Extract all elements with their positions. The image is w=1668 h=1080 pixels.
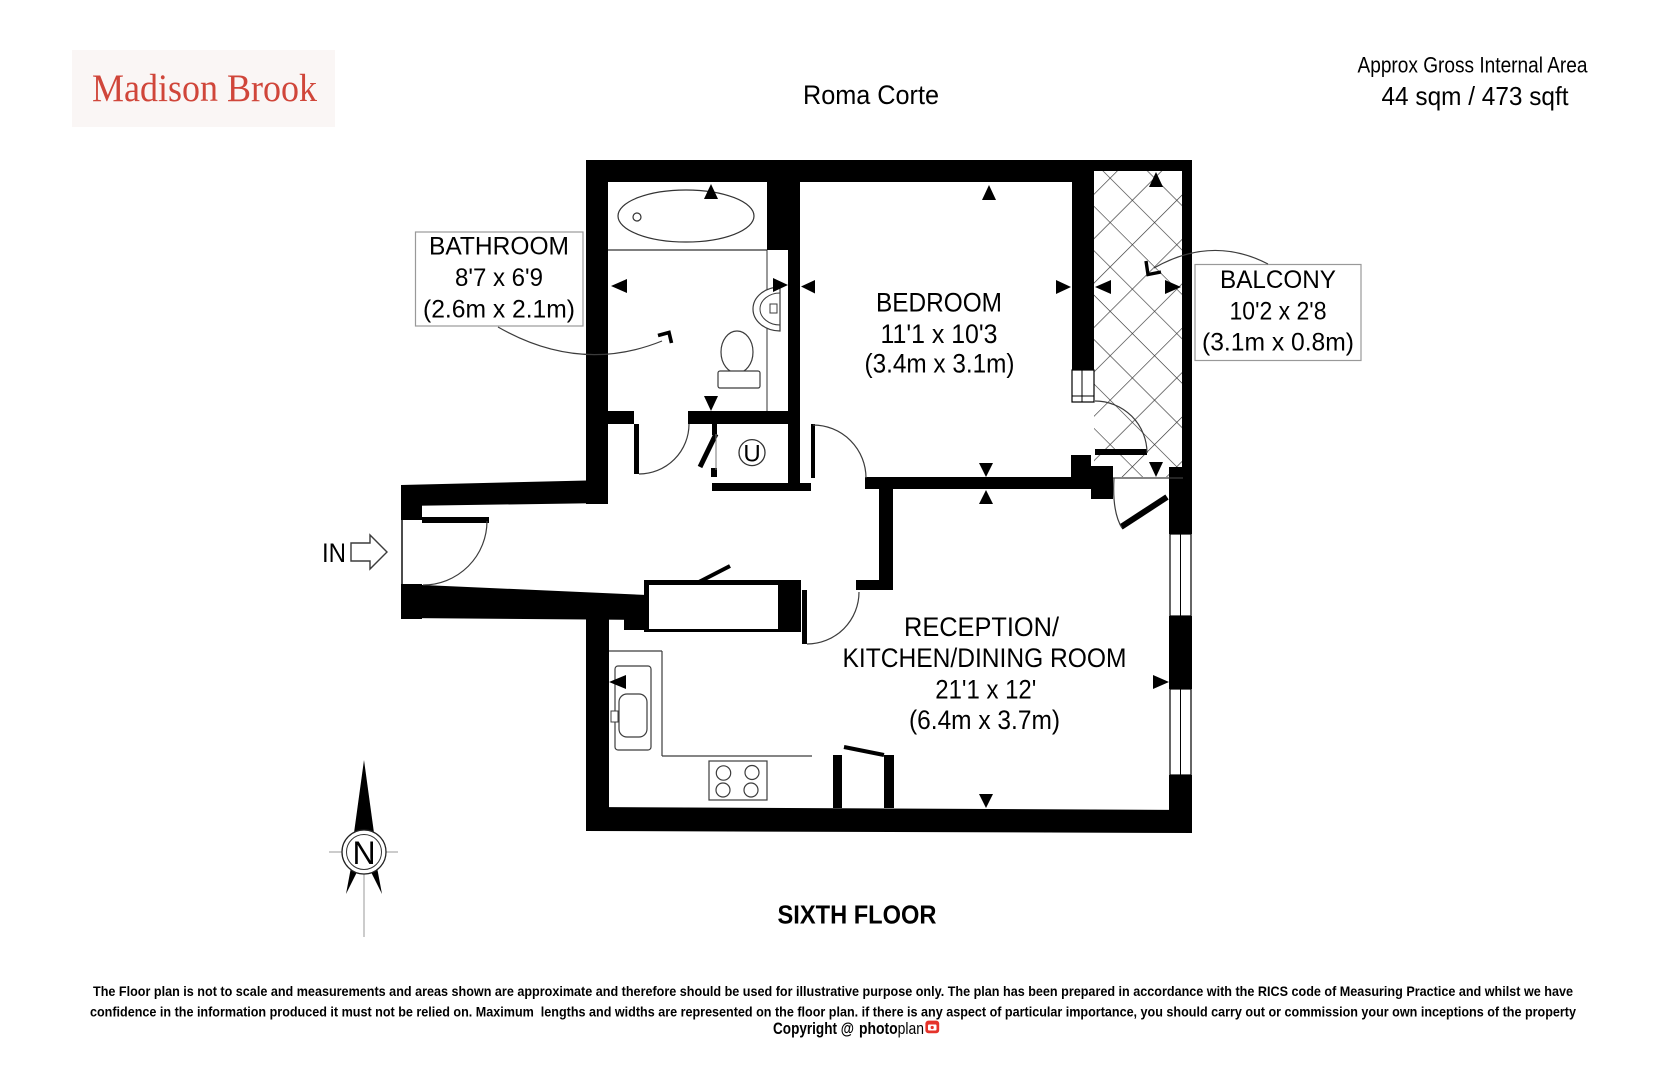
svg-text:confidence in the information: confidence in the information produced i…	[90, 1003, 1576, 1019]
svg-text:KITCHEN/DINING ROOM: KITCHEN/DINING ROOM	[843, 643, 1127, 673]
svg-text:(3.1m x 0.8m): (3.1m x 0.8m)	[1202, 329, 1354, 357]
svg-text:BEDROOM: BEDROOM	[876, 287, 1002, 317]
svg-text:Copyright @: Copyright @	[773, 1019, 854, 1038]
svg-text:(6.4m x 3.7m): (6.4m x 3.7m)	[909, 705, 1060, 735]
svg-text:21'1 x 12': 21'1 x 12'	[935, 675, 1036, 705]
svg-text:10'2 x 2'8: 10'2 x 2'8	[1230, 297, 1327, 325]
svg-text:BALCONY: BALCONY	[1220, 266, 1336, 294]
svg-text:photoplan: photoplan	[859, 1020, 924, 1038]
svg-text:IN: IN	[322, 538, 346, 568]
svg-text:Madison Brook: Madison Brook	[92, 67, 317, 110]
svg-text:SIXTH FLOOR: SIXTH FLOOR	[778, 900, 937, 930]
svg-text:Approx Gross Internal Area: Approx Gross Internal Area	[1358, 53, 1589, 78]
svg-text:(3.4m x 3.1m): (3.4m x 3.1m)	[865, 348, 1015, 378]
svg-text:(2.6m x 2.1m): (2.6m x 2.1m)	[423, 296, 575, 324]
svg-text:U: U	[743, 441, 760, 468]
svg-text:8'7 x 6'9: 8'7 x 6'9	[455, 264, 543, 292]
svg-text:RECEPTION/: RECEPTION/	[904, 612, 1059, 642]
svg-text:Roma Corte: Roma Corte	[803, 80, 939, 110]
svg-text:11'1 x 10'3: 11'1 x 10'3	[881, 319, 998, 349]
svg-text:BATHROOM: BATHROOM	[429, 233, 569, 261]
svg-text:N: N	[352, 835, 375, 871]
svg-text:44 sqm / 473 sqft: 44 sqm / 473 sqft	[1382, 81, 1570, 111]
svg-text:The Floor plan is not to scale: The Floor plan is not to scale and measu…	[93, 983, 1573, 999]
